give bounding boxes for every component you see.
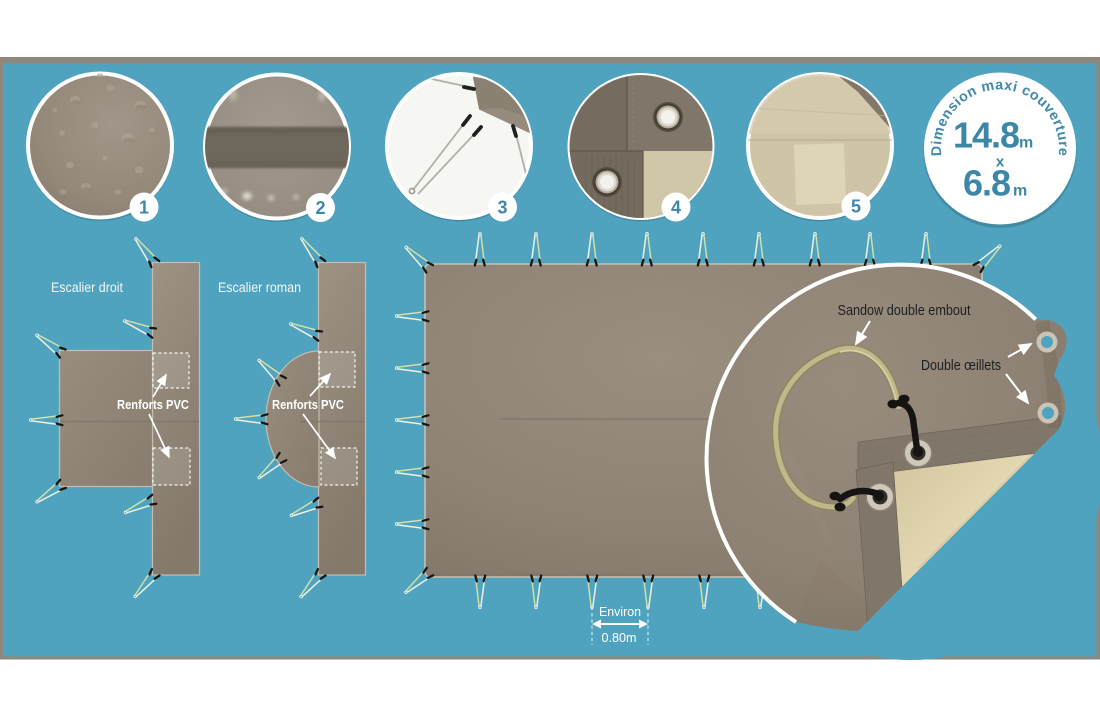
svg-text:4: 4 [671, 198, 681, 218]
svg-text:2: 2 [315, 198, 325, 218]
svg-text:14.8: 14.8 [953, 115, 1019, 156]
svg-text:1: 1 [139, 198, 149, 218]
svg-text:Sandow double embout: Sandow double embout [838, 303, 971, 319]
svg-text:Double œillets: Double œillets [921, 358, 1001, 374]
svg-text:Renforts PVC: Renforts PVC [117, 397, 190, 412]
svg-text:Escalier roman: Escalier roman [218, 280, 301, 295]
svg-text:Renforts PVC: Renforts PVC [272, 397, 345, 412]
svg-text:Environ: Environ [599, 604, 641, 619]
svg-text:5: 5 [851, 197, 861, 217]
svg-text:m: m [1019, 135, 1033, 152]
svg-text:3: 3 [497, 198, 507, 218]
svg-text:0.80m: 0.80m [602, 630, 637, 645]
svg-text:Escalier droit: Escalier droit [51, 280, 123, 295]
svg-text:6.8: 6.8 [963, 163, 1010, 204]
svg-text:m: m [1013, 183, 1027, 200]
